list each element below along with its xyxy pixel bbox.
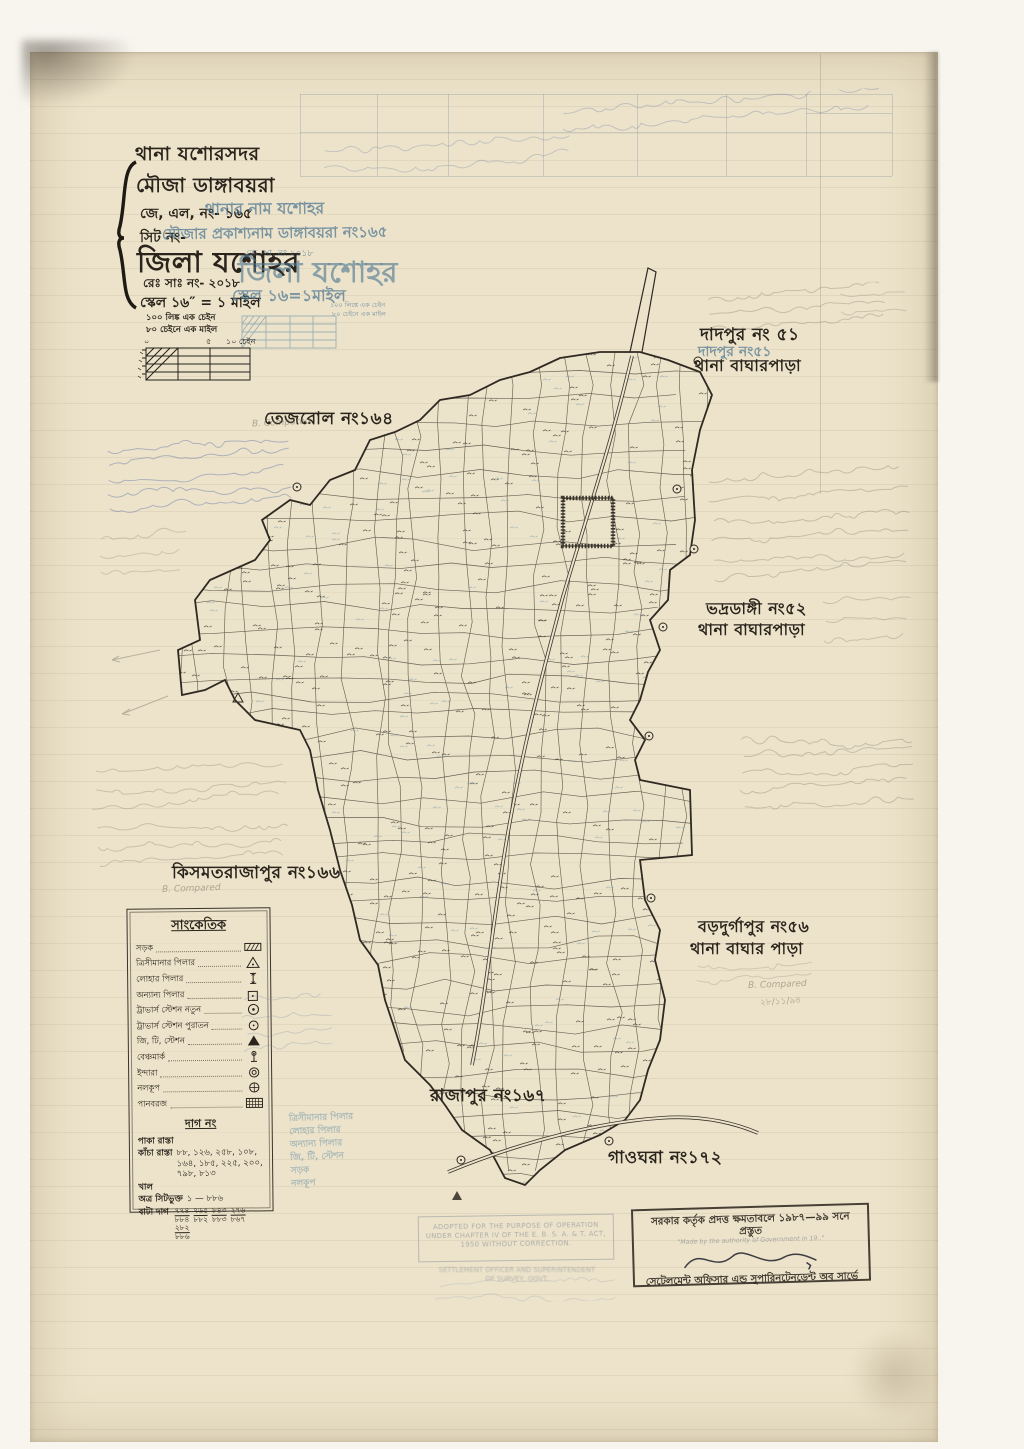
- neighbor-bhadradanga-thana: থানা বাঘারপাড়া: [698, 617, 805, 644]
- dag-row-label: খাল: [138, 1182, 153, 1193]
- legend-leader: [163, 1084, 243, 1093]
- neighbor-dadpur-thana: থানা বাঘারপাড়া: [694, 353, 801, 380]
- legend-item: ত্রিসীমানার পিলার: [136, 955, 262, 972]
- legend-leader: [186, 975, 241, 984]
- signature: [676, 1240, 827, 1274]
- legend-item-label: ট্রাভার্স স্টেশন নতুন: [136, 1003, 201, 1018]
- scanned-cadastral-map-sheet: থানা যশোরসদর মৌজা ডাঙ্গাবয়রা জে, এল, নং…: [0, 0, 1024, 1449]
- handwriting-scribble: [818, 586, 913, 653]
- legend-item-label: নলকূপ: [137, 1082, 160, 1096]
- crosshatch-bar-icon: [245, 1096, 263, 1110]
- compared-date: ২৮/১১/৯৪: [760, 993, 802, 1011]
- legend-leader: [170, 1099, 242, 1108]
- dag-header: দাগ নং: [138, 1114, 264, 1134]
- handwriting-scribble: [837, 281, 908, 323]
- dag-row-label: পাকা রাস্তা: [138, 1136, 174, 1147]
- legend-leader: [188, 1037, 242, 1046]
- dag-row-value: [178, 1135, 264, 1146]
- adopted-stamp: ADOPTED FOR THE PURPOSE OF OPERATION UND…: [418, 1214, 615, 1263]
- dag-row-value: ১ — ৮৮৬: [187, 1193, 265, 1204]
- dag-row-label: বাটা দাগ: [139, 1207, 169, 1241]
- triangle-outline-icon: [244, 956, 262, 970]
- authority-stamp: সরকার কর্তৃক প্রদত্ত ক্ষমতাবলে ১৯৮৭—৯৯ স…: [631, 1203, 871, 1288]
- neighbor-rajapur: রাজাপুর নং১৬৭: [430, 1083, 546, 1111]
- vertical-crease: [820, 54, 821, 494]
- legend-leader: [156, 943, 241, 952]
- legend-leader: [204, 1006, 242, 1014]
- circle-cross-icon: [245, 1080, 263, 1094]
- dag-row-label: কাঁচা রাস্তা: [138, 1148, 173, 1180]
- dag-row: বাটা দাগ৭৭৪৮৮৪৭৬৫৮৮২৮৪৩৮৮৩২৭৬৮৬৭২৮২৮৮৬: [139, 1206, 265, 1241]
- legend-item-label: পানবরজ: [137, 1097, 167, 1111]
- dag-row: পাকা রাস্তা: [138, 1135, 264, 1147]
- legend-item-label: অন্যান্য পিলার: [136, 988, 184, 1003]
- dag-row: কাঁচা রাস্তা৮৮, ১২৬, ২৫৮, ১০৮, ১৬৪, ১৮৫,…: [138, 1147, 264, 1180]
- dag-row-value: ৮৮, ১২৬, ২৫৮, ১০৮, ১৬৪, ১৮৫, ২২৫, ২০০, ৭…: [176, 1147, 264, 1179]
- legend-stamp-ghost: ত্রিসীমানার পিলারলোহার পিলারঅন্যান্য পিল…: [289, 1111, 356, 1191]
- legend-item-label: ট্রাভার্স স্টেশন পুরাতন: [137, 1019, 209, 1034]
- legend-item: ইন্দারা: [137, 1064, 263, 1081]
- hatched-bar-icon: [244, 940, 262, 954]
- legend-item-label: ইন্দারা: [137, 1066, 158, 1080]
- bottom-smudge: [850, 1330, 940, 1420]
- dag-row-value: [157, 1181, 265, 1193]
- double-circle-icon: [245, 1065, 263, 1079]
- iron-pillar-icon: [244, 971, 262, 985]
- dag-rows: পাকা রাস্তাকাঁচা রাস্তা৮৮, ১২৬, ২৫৮, ১০৮…: [138, 1135, 265, 1241]
- dag-row: খাল: [138, 1181, 264, 1193]
- dag-row: অত্র সিটভুক্ত১ — ৮৮৬: [138, 1193, 264, 1205]
- legend-item-label: লোহার পিলার: [136, 972, 183, 986]
- handwriting-scribble: [98, 433, 292, 518]
- legend-leader: [212, 1021, 242, 1029]
- compared-note-2: B. Compared: [162, 883, 221, 895]
- legend-item: লোহার পিলার: [136, 971, 262, 988]
- legend-leader: [168, 1053, 242, 1062]
- edge-streak: [924, 52, 938, 382]
- handwriting-scribble: [702, 460, 913, 593]
- legend-item: নলকূপ: [137, 1080, 263, 1097]
- legend-title: সাংকেতিক: [135, 915, 261, 937]
- dag-row-label: অত্র সিটভুক্ত: [138, 1194, 182, 1205]
- handwriting-scribble: [87, 750, 291, 878]
- legend-leader: [198, 959, 241, 967]
- dag-row-value: ৭৭৪৮৮৪৭৬৫৮৮২৮৪৩৮৮৩২৭৬৮৬৭২৮২৮৮৬: [173, 1206, 265, 1241]
- handwriting-scribble: [733, 721, 915, 818]
- legend-item-label: ত্রিসীমানার পিলার: [136, 956, 195, 971]
- handwriting-scribble: [238, 986, 333, 1062]
- legend-item-label: জি, টি, স্টেশন: [137, 1035, 185, 1050]
- legend-item: সড়ক: [136, 939, 262, 956]
- neighbor-gaoghara: গাওঘরা নং১৭২: [608, 1145, 722, 1173]
- handwriting-scribble: [94, 526, 188, 582]
- legend-item: পানবরজ: [137, 1095, 263, 1112]
- legend-leader: [187, 990, 241, 999]
- legend-item-label: বেঞ্চমার্ক: [137, 1050, 165, 1064]
- handwriting-scribble: [689, 953, 812, 990]
- legend-item-label: সড়ক: [136, 941, 153, 955]
- legend-leader: [160, 1068, 242, 1077]
- corner-smudge: [22, 40, 142, 110]
